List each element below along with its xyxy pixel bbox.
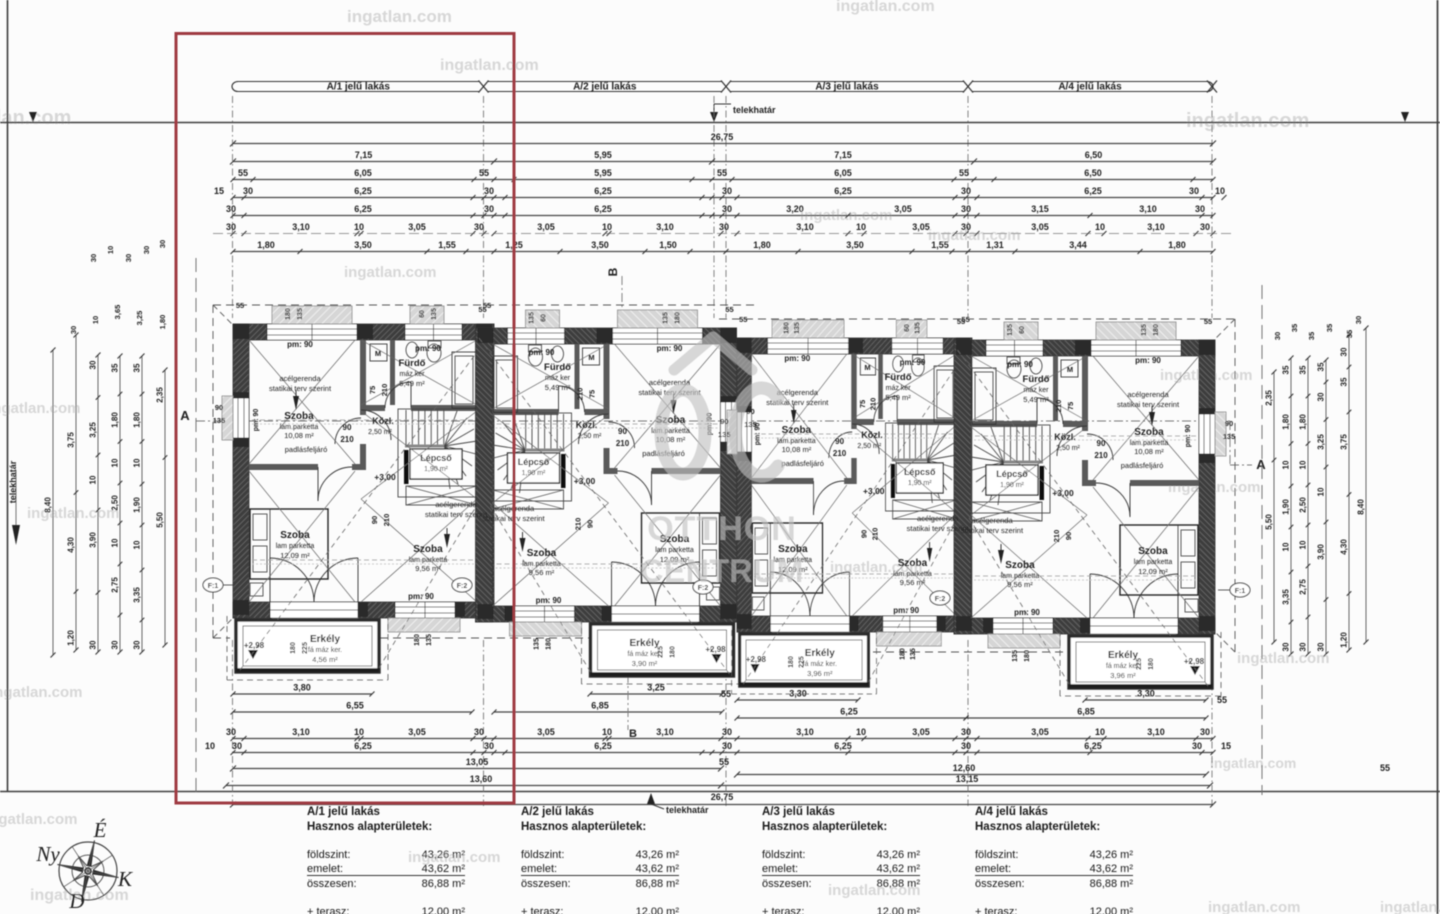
svg-text:90: 90 — [343, 423, 352, 432]
svg-text:3,05: 3,05 — [537, 727, 555, 737]
svg-text:30: 30 — [961, 727, 971, 737]
svg-text:3,10: 3,10 — [1147, 222, 1165, 232]
svg-text:3,05: 3,05 — [912, 727, 930, 737]
svg-text:3,50: 3,50 — [846, 240, 864, 250]
svg-text:M: M — [864, 363, 870, 372]
svg-text:Hasznos alapterületek:: Hasznos alapterületek: — [762, 821, 887, 833]
svg-text:30: 30 — [474, 727, 484, 737]
svg-text:acélgerenda: acélgerenda — [1127, 390, 1169, 399]
svg-text:180: 180 — [899, 648, 906, 660]
svg-text:emelet:: emelet: — [307, 863, 343, 875]
svg-text:1,90: 1,90 — [133, 497, 142, 513]
svg-text:Szoba: Szoba — [284, 411, 314, 422]
svg-text:225: 225 — [658, 646, 665, 658]
svg-text:13,15: 13,15 — [956, 774, 979, 784]
svg-text:Erkély: Erkély — [310, 634, 340, 645]
svg-text:90: 90 — [586, 520, 595, 528]
svg-text:3,25: 3,25 — [1317, 434, 1326, 450]
svg-text:13,60: 13,60 — [470, 774, 493, 784]
svg-text:30: 30 — [1273, 332, 1282, 340]
svg-text:135: 135 — [1007, 324, 1014, 336]
svg-text:30: 30 — [1340, 347, 1349, 356]
svg-text:9,56 m²: 9,56 m² — [529, 568, 555, 577]
svg-text:3,25: 3,25 — [89, 422, 98, 438]
svg-text:1,50: 1,50 — [659, 240, 677, 250]
svg-text:30: 30 — [484, 741, 494, 751]
svg-text:10: 10 — [111, 538, 120, 547]
svg-text:3,75: 3,75 — [67, 432, 76, 448]
svg-text:75: 75 — [368, 386, 377, 394]
svg-text:30: 30 — [1192, 741, 1202, 751]
svg-text:90: 90 — [215, 403, 223, 412]
svg-text:5,50: 5,50 — [156, 512, 165, 528]
svg-text:12,00 m²: 12,00 m² — [877, 906, 921, 914]
svg-text:135: 135 — [431, 308, 438, 320]
svg-text:Lépcső: Lépcső — [996, 469, 1028, 479]
svg-text:12,60: 12,60 — [953, 763, 976, 773]
svg-text:55: 55 — [739, 315, 747, 324]
svg-text:ingatlan.com: ingatlan.com — [1380, 899, 1440, 914]
svg-text:2,35: 2,35 — [1265, 390, 1274, 406]
svg-text:30: 30 — [722, 741, 732, 751]
svg-text:5,50: 5,50 — [1265, 514, 1274, 530]
svg-text:A/4 jelű lakás: A/4 jelű lakás — [975, 806, 1048, 818]
svg-text:pm: 90: pm: 90 — [1185, 425, 1192, 448]
svg-text:Szoba: Szoba — [1138, 546, 1168, 557]
svg-text:1,90 m²: 1,90 m² — [1000, 482, 1024, 489]
svg-text:43,62 m²: 43,62 m² — [1090, 863, 1134, 875]
svg-text:pm: 90: pm: 90 — [784, 354, 810, 363]
svg-text:10: 10 — [133, 458, 142, 467]
svg-text:pm: 90: pm: 90 — [657, 344, 683, 353]
svg-text:43,62 m²: 43,62 m² — [877, 863, 921, 875]
svg-text:5,49 m²: 5,49 m² — [545, 383, 571, 392]
svg-text:3,90: 3,90 — [89, 532, 98, 548]
svg-text:+ terasz:: + terasz: — [307, 906, 350, 914]
svg-text:3,20: 3,20 — [786, 204, 804, 214]
svg-text:Lépcső: Lépcső — [420, 453, 452, 463]
svg-text:35: 35 — [1299, 365, 1308, 374]
svg-text:6,25: 6,25 — [354, 204, 372, 214]
svg-text:M: M — [375, 349, 381, 358]
svg-text:máz ker: máz ker — [886, 385, 912, 392]
svg-text:pm: 90: pm: 90 — [1135, 356, 1161, 365]
svg-text:210: 210 — [380, 384, 389, 397]
svg-text:30: 30 — [124, 254, 133, 262]
svg-text:Erkély: Erkély — [629, 638, 659, 649]
svg-text:3,35: 3,35 — [133, 587, 142, 603]
svg-text:A/2 jelű lakás: A/2 jelű lakás — [521, 806, 594, 818]
svg-text:30: 30 — [1282, 642, 1291, 651]
svg-text:9,56 m²: 9,56 m² — [1007, 580, 1033, 589]
svg-text:lam parketta: lam parketta — [276, 543, 315, 550]
svg-text:30: 30 — [961, 204, 971, 214]
svg-text:135: 135 — [529, 312, 536, 324]
svg-text:Szoba: Szoba — [1134, 427, 1164, 438]
svg-text:60: 60 — [1019, 326, 1026, 334]
svg-text:acélgerenda: acélgerenda — [971, 516, 1013, 525]
svg-text:K: K — [117, 867, 133, 891]
svg-text:10: 10 — [1095, 727, 1105, 737]
svg-text:lam.parketta: lam.parketta — [522, 561, 561, 568]
svg-text:10: 10 — [1317, 487, 1326, 496]
svg-text:pm: 90: pm: 90 — [287, 340, 313, 349]
svg-text:6,05: 6,05 — [834, 168, 852, 178]
svg-text:180: 180 — [675, 312, 682, 324]
svg-text:3,90 m²: 3,90 m² — [632, 659, 658, 668]
svg-text:6,55: 6,55 — [346, 701, 364, 711]
svg-text:30: 30 — [89, 254, 98, 262]
svg-text:ingatlan.com: ingatlan.com — [1186, 110, 1309, 132]
svg-text:2,50 m²: 2,50 m² — [1056, 445, 1080, 452]
svg-text:+ terasz:: + terasz: — [975, 906, 1018, 914]
svg-text:6,25: 6,25 — [594, 741, 612, 751]
svg-text:3,05: 3,05 — [1031, 727, 1049, 737]
svg-text:Szoba: Szoba — [527, 548, 557, 559]
svg-text:210: 210 — [1094, 451, 1108, 460]
svg-text:210: 210 — [833, 449, 847, 458]
svg-text:Szoba: Szoba — [413, 544, 443, 555]
svg-text:210: 210 — [340, 435, 354, 444]
svg-text:ingatlan.com: ingatlan.com — [347, 7, 452, 26]
svg-text:30: 30 — [484, 186, 494, 196]
svg-text:6,25: 6,25 — [594, 186, 612, 196]
svg-text:135: 135 — [426, 634, 433, 646]
svg-text:pm: 90: pm: 90 — [1007, 360, 1033, 369]
svg-text:30: 30 — [961, 186, 971, 196]
svg-text:15: 15 — [1221, 741, 1231, 751]
svg-text:3,15: 3,15 — [1031, 204, 1049, 214]
svg-text:+2,98: +2,98 — [705, 645, 726, 654]
svg-text:padlásfeljáró: padlásfeljáró — [781, 459, 824, 468]
svg-text:10: 10 — [602, 727, 612, 737]
svg-text:30: 30 — [111, 640, 120, 649]
svg-text:13,05: 13,05 — [466, 757, 489, 767]
svg-text:Szoba: Szoba — [1005, 560, 1035, 571]
svg-text:B: B — [629, 728, 637, 740]
svg-text:12,00 m²: 12,00 m² — [1090, 906, 1134, 914]
svg-text:135: 135 — [915, 322, 922, 334]
svg-text:F:1: F:1 — [1235, 588, 1246, 595]
svg-text:ingatlan.com: ingatlan.com — [1210, 755, 1296, 771]
svg-text:6,25: 6,25 — [840, 707, 858, 717]
svg-text:55: 55 — [721, 689, 731, 699]
svg-text:Közl.: Közl. — [372, 416, 394, 426]
svg-text:30: 30 — [961, 222, 971, 232]
svg-text:10,08 m²: 10,08 m² — [1134, 447, 1164, 456]
svg-text:D: D — [68, 889, 84, 913]
svg-text:7,15: 7,15 — [834, 150, 852, 160]
svg-text:pm: 90: pm: 90 — [253, 409, 260, 432]
svg-text:30: 30 — [69, 326, 78, 334]
svg-text:6,25: 6,25 — [834, 741, 852, 751]
svg-text:A/1 jelű lakás: A/1 jelű lakás — [307, 806, 380, 818]
svg-text:+2,98: +2,98 — [746, 655, 767, 664]
svg-text:30: 30 — [1317, 392, 1326, 401]
svg-text:F:2: F:2 — [935, 596, 946, 603]
svg-text:Hasznos alapterületek:: Hasznos alapterületek: — [307, 821, 432, 833]
svg-text:86,88 m²: 86,88 m² — [636, 878, 680, 890]
svg-text:fá máz ker.: fá máz ker. — [803, 661, 837, 668]
svg-text:10: 10 — [1095, 222, 1105, 232]
svg-text:3,05: 3,05 — [1031, 222, 1049, 232]
svg-text:6,25: 6,25 — [354, 186, 372, 196]
svg-text:1,55: 1,55 — [438, 240, 456, 250]
svg-text:+3,00: +3,00 — [574, 476, 596, 486]
svg-text:90: 90 — [1225, 419, 1233, 428]
svg-text:10,08 m²: 10,08 m² — [284, 431, 314, 440]
svg-text:180: 180 — [1024, 650, 1031, 662]
svg-text:10: 10 — [1282, 460, 1291, 469]
svg-text:1,80: 1,80 — [1168, 240, 1186, 250]
svg-text:ingatlan.com: ingatlan.com — [0, 107, 71, 129]
svg-text:86,88 m²: 86,88 m² — [877, 878, 921, 890]
svg-text:35: 35 — [1325, 324, 1334, 332]
svg-text:55: 55 — [725, 305, 733, 314]
svg-text:5,49 m²: 5,49 m² — [1023, 395, 1049, 404]
svg-text:55: 55 — [1204, 317, 1212, 326]
svg-text:1,80: 1,80 — [1282, 414, 1291, 430]
svg-text:Közl.: Közl. — [576, 420, 598, 430]
svg-text:86,88 m²: 86,88 m² — [1090, 878, 1134, 890]
svg-text:35: 35 — [111, 363, 120, 372]
svg-text:máz ker: máz ker — [545, 375, 571, 382]
svg-text:26,75: 26,75 — [711, 132, 734, 142]
svg-text:75: 75 — [1066, 402, 1075, 410]
svg-text:1,80: 1,80 — [257, 240, 275, 250]
svg-text:6,50: 6,50 — [1085, 150, 1103, 160]
svg-text:acélgerenda: acélgerenda — [279, 374, 321, 383]
svg-text:30: 30 — [484, 204, 494, 214]
svg-text:pm: 90: pm: 90 — [900, 358, 926, 367]
svg-text:35: 35 — [1282, 365, 1291, 374]
svg-text:ingatlan.com: ingatlan.com — [27, 505, 120, 522]
svg-text:10: 10 — [602, 222, 612, 232]
svg-text:2,75: 2,75 — [111, 577, 120, 593]
svg-text:Fürdő: Fürdő — [544, 362, 571, 373]
svg-text:60: 60 — [541, 314, 548, 322]
svg-text:Közl.: Közl. — [861, 430, 883, 440]
svg-text:30: 30 — [1200, 727, 1210, 737]
svg-text:1,31: 1,31 — [986, 240, 1004, 250]
svg-text:225: 225 — [799, 656, 806, 668]
svg-text:55: 55 — [1380, 763, 1390, 773]
svg-text:5,49 m²: 5,49 m² — [885, 393, 911, 402]
svg-text:3,30: 3,30 — [1137, 689, 1155, 699]
svg-text:6,25: 6,25 — [834, 186, 852, 196]
svg-text:225: 225 — [302, 642, 309, 654]
svg-text:210: 210 — [616, 439, 630, 448]
svg-text:lam.parketta: lam.parketta — [280, 424, 319, 431]
svg-text:35: 35 — [1345, 330, 1354, 338]
svg-text:Lépcső: Lépcső — [904, 467, 936, 477]
svg-text:A/3 jelű lakás: A/3 jelű lakás — [762, 806, 835, 818]
svg-text:5,49 m²: 5,49 m² — [399, 379, 425, 388]
svg-text:75: 75 — [588, 390, 597, 398]
svg-text:55: 55 — [959, 168, 969, 178]
svg-text:90: 90 — [370, 516, 379, 524]
svg-text:F:2: F:2 — [457, 583, 468, 590]
svg-text:pm: 90: pm: 90 — [1014, 608, 1040, 617]
svg-text:Szoba: Szoba — [898, 558, 928, 569]
svg-text:12,09 m²: 12,09 m² — [1138, 567, 1168, 576]
svg-text:2,35: 2,35 — [156, 387, 165, 403]
svg-text:3,50: 3,50 — [591, 240, 609, 250]
svg-text:2,50: 2,50 — [1299, 497, 1308, 513]
svg-text:5,95: 5,95 — [594, 150, 612, 160]
svg-text:3,65: 3,65 — [113, 305, 122, 320]
svg-text:6,85: 6,85 — [591, 701, 609, 711]
svg-text:10: 10 — [856, 727, 866, 737]
svg-text:1,20: 1,20 — [67, 630, 76, 646]
svg-text:1,80: 1,80 — [1299, 414, 1308, 430]
svg-text:telekhatár: telekhatár — [733, 105, 776, 115]
svg-text:75: 75 — [858, 400, 867, 408]
svg-text:1,80: 1,80 — [111, 412, 120, 428]
svg-text:1,90 m²: 1,90 m² — [908, 480, 932, 487]
svg-text:lam.parketta: lam.parketta — [1001, 573, 1040, 580]
svg-text:ingatlan.com: ingatlan.com — [440, 57, 539, 74]
svg-text:+2,98: +2,98 — [244, 641, 265, 650]
svg-text:ingatlan.com: ingatlan.com — [344, 264, 437, 281]
svg-text:30: 30 — [1354, 316, 1363, 324]
svg-text:8,40: 8,40 — [1357, 499, 1366, 515]
svg-text:A/3 jelű lakás: A/3 jelű lakás — [815, 82, 879, 93]
svg-text:135: 135 — [910, 648, 917, 660]
svg-text:180: 180 — [285, 308, 292, 320]
svg-text:CENTRUM: CENTRUM — [640, 553, 803, 589]
svg-text:12,00 m²: 12,00 m² — [636, 906, 680, 914]
svg-text:10: 10 — [133, 540, 142, 549]
svg-text:emelet:: emelet: — [975, 863, 1011, 875]
svg-text:10: 10 — [1215, 186, 1225, 196]
svg-text:30: 30 — [961, 741, 971, 751]
svg-text:35: 35 — [1307, 332, 1316, 340]
svg-text:+ terasz:: + terasz: — [762, 906, 805, 914]
svg-text:90: 90 — [720, 417, 728, 426]
svg-text:1,55: 1,55 — [931, 240, 949, 250]
svg-text:135: 135 — [794, 322, 801, 334]
svg-text:1,80: 1,80 — [133, 412, 142, 428]
svg-text:35: 35 — [133, 363, 142, 372]
svg-text:3,10: 3,10 — [292, 727, 310, 737]
svg-text:3,90: 3,90 — [1317, 544, 1326, 560]
svg-text:35: 35 — [1317, 362, 1326, 371]
svg-text:ingatlan.com: ingatlan.com — [0, 811, 78, 828]
svg-text:135: 135 — [1012, 650, 1019, 662]
svg-text:ingatlan.com: ingatlan.com — [1237, 650, 1330, 667]
svg-text:összesen:: összesen: — [975, 878, 1025, 890]
svg-text:210: 210 — [1054, 400, 1063, 413]
svg-text:emelet:: emelet: — [521, 863, 557, 875]
svg-text:6,50: 6,50 — [1084, 168, 1102, 178]
svg-text:135: 135 — [718, 430, 731, 439]
svg-text:225: 225 — [1136, 658, 1143, 670]
svg-text:földszint:: földszint: — [762, 849, 805, 861]
svg-text:135: 135 — [1223, 432, 1236, 441]
svg-text:4,30: 4,30 — [67, 537, 76, 553]
svg-text:földszint:: földszint: — [975, 849, 1018, 861]
svg-text:3,10: 3,10 — [796, 222, 814, 232]
svg-text:135: 135 — [213, 416, 226, 425]
svg-text:pm: 90: pm: 90 — [529, 348, 555, 357]
svg-text:lam.parketta: lam.parketta — [777, 438, 816, 445]
svg-text:135: 135 — [297, 308, 304, 320]
svg-text:lam parketta: lam parketta — [1134, 559, 1173, 566]
svg-text:30: 30 — [158, 240, 167, 248]
svg-text:180: 180 — [788, 656, 795, 668]
svg-text:55: 55 — [238, 168, 248, 178]
svg-text:3,25: 3,25 — [135, 311, 144, 326]
svg-text:5,95: 5,95 — [594, 168, 612, 178]
svg-text:+2,98: +2,98 — [1184, 657, 1205, 666]
svg-text:+ terasz:: + terasz: — [521, 906, 564, 914]
svg-text:90: 90 — [1097, 439, 1106, 448]
svg-text:30: 30 — [133, 640, 142, 649]
svg-text:90: 90 — [860, 530, 869, 538]
svg-text:30: 30 — [474, 222, 484, 232]
svg-text:máz ker: máz ker — [400, 371, 426, 378]
svg-text:Fürdő: Fürdő — [1023, 374, 1050, 385]
svg-text:12,00 m²: 12,00 m² — [422, 906, 466, 914]
svg-text:10: 10 — [111, 458, 120, 467]
svg-text:ingatlan.com: ingatlan.com — [0, 400, 81, 417]
svg-text:10: 10 — [205, 741, 215, 751]
svg-text:10: 10 — [1282, 542, 1291, 551]
svg-text:+3,00: +3,00 — [1052, 488, 1074, 498]
svg-text:60: 60 — [419, 310, 426, 318]
svg-text:90: 90 — [835, 437, 844, 446]
svg-text:3,10: 3,10 — [796, 727, 814, 737]
svg-text:Erkély: Erkély — [805, 648, 835, 659]
svg-text:Közl.: Közl. — [1054, 432, 1076, 442]
svg-text:Szoba: Szoba — [782, 425, 812, 436]
svg-text:2,75: 2,75 — [1299, 579, 1308, 595]
svg-text:35: 35 — [1290, 324, 1299, 332]
svg-text:3,10: 3,10 — [656, 222, 674, 232]
svg-text:135: 135 — [663, 312, 670, 324]
svg-text:3,10: 3,10 — [656, 727, 674, 737]
svg-text:2,50: 2,50 — [111, 495, 120, 511]
svg-text:55: 55 — [717, 168, 727, 178]
svg-text:1,90 m²: 1,90 m² — [424, 466, 448, 473]
svg-text:30: 30 — [1195, 204, 1205, 214]
svg-text:padlásfeljáró: padlásfeljáró — [285, 445, 328, 454]
svg-text:Erkély: Erkély — [1108, 650, 1138, 661]
svg-text:10: 10 — [1299, 460, 1308, 469]
svg-text:3,05: 3,05 — [408, 727, 426, 737]
svg-text:55: 55 — [479, 168, 489, 178]
svg-text:statikai terv szerint: statikai terv szerint — [269, 384, 332, 393]
svg-text:M: M — [1067, 365, 1073, 374]
svg-text:90: 90 — [1064, 532, 1073, 540]
svg-text:Fürdő: Fürdő — [399, 358, 426, 369]
svg-text:összesen:: összesen: — [521, 878, 571, 890]
svg-text:acélgerenda: acélgerenda — [917, 514, 959, 523]
svg-text:6,25: 6,25 — [1084, 186, 1102, 196]
svg-text:135: 135 — [534, 638, 541, 650]
svg-text:35: 35 — [1340, 377, 1349, 386]
svg-text:3,05: 3,05 — [537, 222, 555, 232]
svg-text:Lépcső: Lépcső — [518, 457, 550, 467]
svg-text:2,50 m²: 2,50 m² — [578, 433, 602, 440]
svg-text:+3,00: +3,00 — [863, 486, 885, 496]
svg-text:statikai terv szerint: statikai terv szerint — [1117, 400, 1180, 409]
svg-text:30: 30 — [226, 222, 236, 232]
svg-text:Szoba: Szoba — [280, 530, 310, 541]
svg-text:6,25: 6,25 — [1084, 741, 1102, 751]
svg-text:pm: 90: pm: 90 — [415, 344, 441, 353]
